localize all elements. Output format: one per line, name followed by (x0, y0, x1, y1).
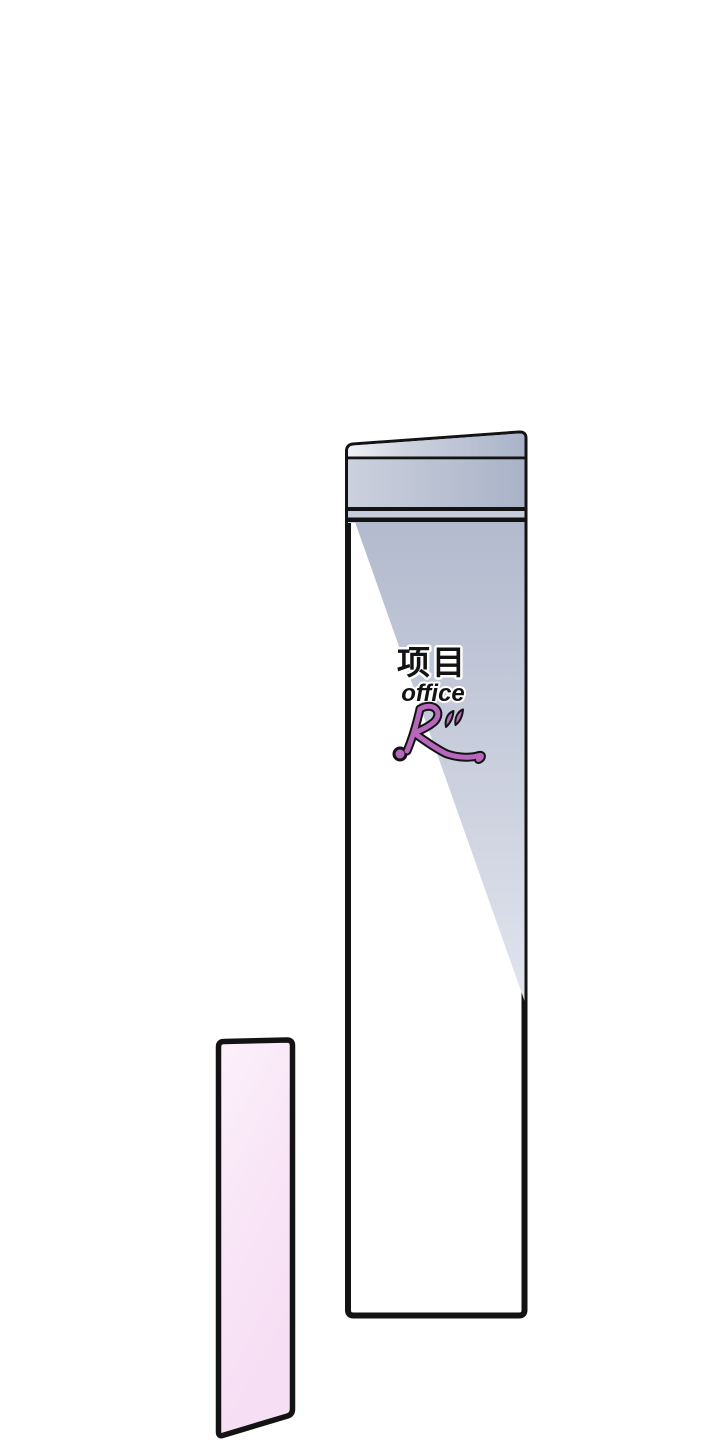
signboard-double-line-upper (345, 507, 527, 511)
comic-panel: 项目 office R” (0, 0, 720, 1440)
comic-panel-art: 项目 office R” (0, 0, 720, 1440)
signboard-double-line-lower (345, 518, 527, 523)
signboard-divider-line-top (345, 457, 527, 460)
r-logo-dot (396, 750, 405, 759)
signboard-double-line-gap (345, 511, 527, 518)
side-door-panel (219, 1040, 293, 1436)
signboard-label-cn: 项目 (397, 643, 467, 682)
